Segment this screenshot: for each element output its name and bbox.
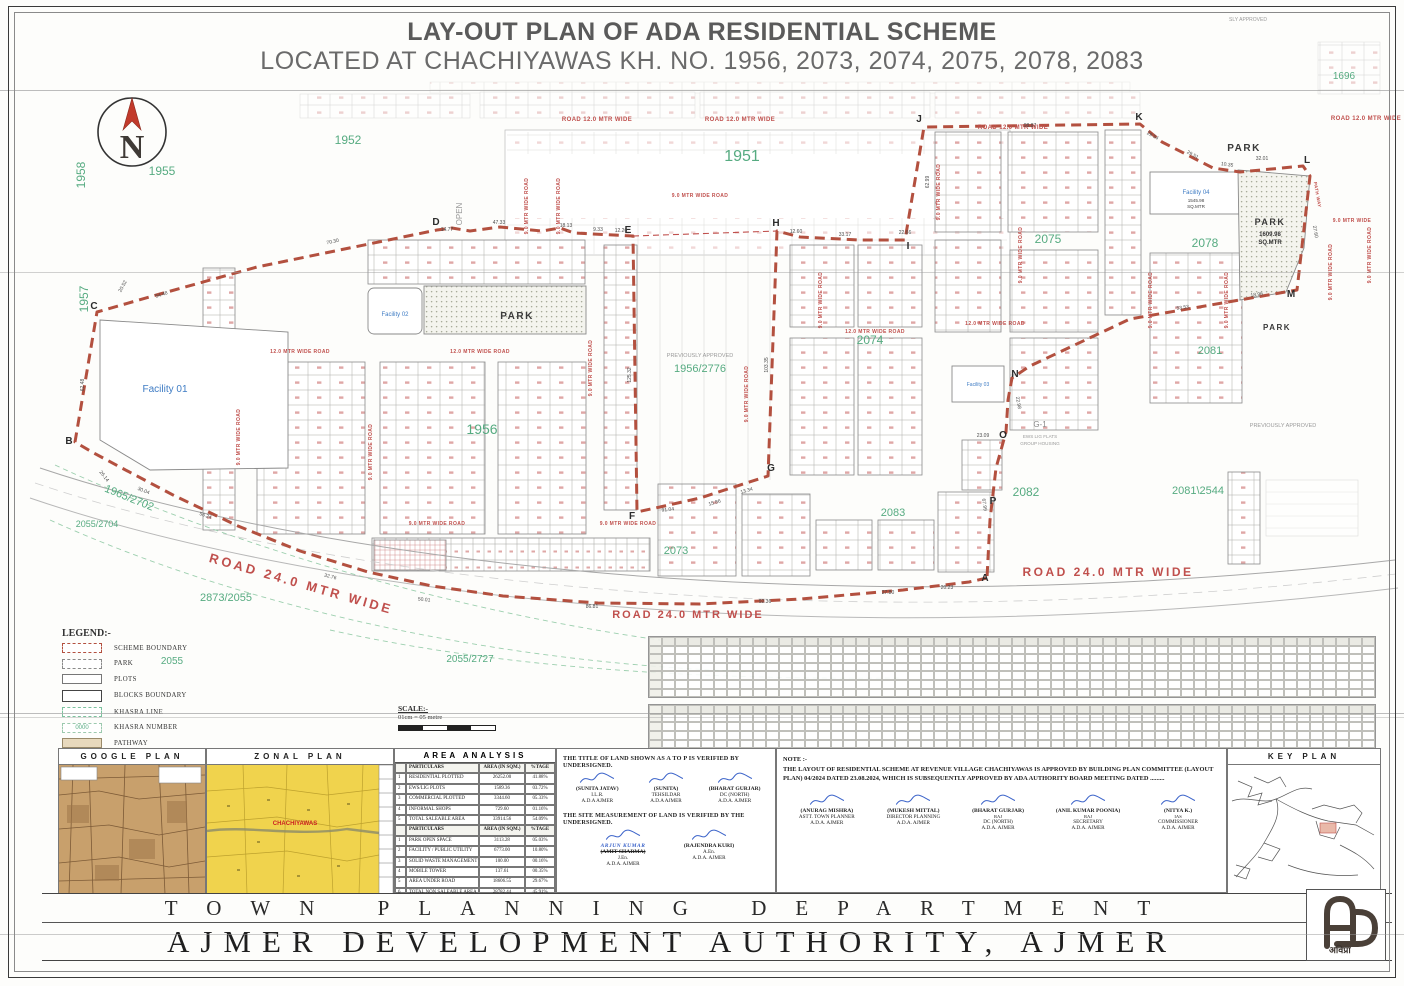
schedule-cell [662, 671, 675, 680]
svg-text:9.0 MTR WIDE ROAD: 9.0 MTR WIDE ROAD [818, 272, 824, 329]
svg-text:Facility 01: Facility 01 [142, 384, 187, 395]
schedule-cell [1155, 680, 1168, 689]
plot-schedule-table [648, 636, 1376, 698]
schedule-cell [843, 689, 856, 698]
schedule-cell [1362, 671, 1375, 680]
schedule-cell [753, 654, 766, 663]
area-analysis-row: 5TOTAL SALEABLE AREA33914.5654.09% [395, 815, 555, 825]
schedule-cell [1258, 637, 1271, 646]
schedule-cell [921, 671, 934, 680]
schedule-cell [882, 740, 895, 749]
schedule-cell [675, 722, 688, 731]
schedule-cell [805, 654, 818, 663]
schedule-cell [908, 646, 921, 655]
schedule-cell [843, 680, 856, 689]
schedule-cell [675, 637, 688, 646]
schedule-cell [1297, 689, 1310, 698]
signature-scribble-icon [1156, 794, 1200, 808]
schedule-cell [960, 689, 973, 698]
north-letter: N [120, 129, 145, 166]
note-body: NOTE :- THE LAYOUT OF RESIDENTIAL SCHEME… [777, 749, 1226, 837]
verification-panel: THE TITLE OF LAND SHOWN AS A TO P IS VER… [556, 748, 776, 893]
svg-text:C: C [90, 301, 97, 312]
khasra-line-swatch [62, 707, 102, 717]
schedule-cell [882, 689, 895, 698]
schedule-cell [882, 637, 895, 646]
svg-text:103.35: 103.35 [764, 357, 770, 373]
area-analysis-panel: AREA ANALYSIS PARTICULARSAREA (IN SQM.)%… [394, 748, 556, 893]
schedule-cell [766, 654, 779, 663]
schedule-cell [1155, 654, 1168, 663]
key-plan-image [1228, 765, 1380, 894]
schedule-cell [792, 680, 805, 689]
schedule-cell [986, 731, 999, 740]
schedule-cell [1245, 689, 1258, 698]
schedule-cell [921, 731, 934, 740]
schedule-cell [675, 654, 688, 663]
legend-item-scheme-boundary: SCHEME BOUNDARY [62, 643, 262, 653]
schedule-cell [1090, 689, 1103, 698]
area-analysis-cell: 3 [395, 794, 406, 804]
schedule-cell [1116, 663, 1129, 672]
schedule-cell [701, 740, 714, 749]
schedule-cell [1258, 646, 1271, 655]
schedule-cell [805, 722, 818, 731]
schedule-cell [1349, 654, 1362, 663]
schedule-cell [934, 722, 947, 731]
schedule-cell [753, 722, 766, 731]
schedule-cell [1349, 731, 1362, 740]
schedule-cell [908, 654, 921, 663]
schedule-cell [1258, 680, 1271, 689]
schedule-cell [856, 663, 869, 672]
schedule-cell [740, 722, 753, 731]
schedule-cell [1051, 646, 1064, 655]
key-plan-header: KEY PLAN [1228, 749, 1380, 765]
schedule-cell [1323, 671, 1336, 680]
area-analysis-cell: 41.88% [525, 773, 555, 783]
svg-text:26.14: 26.14 [98, 470, 111, 484]
schedule-cell [714, 680, 727, 689]
schedule-cell [649, 680, 662, 689]
signature-block: (ANIL KUMAR POONIA)RAJSECRETARYA.D.A. AJ… [1056, 794, 1120, 831]
signatory-org: A.D.A. AJMER [709, 798, 761, 804]
svg-text:ROAD 24.0 MTR WIDE: ROAD 24.0 MTR WIDE [1022, 565, 1193, 579]
schedule-cell [1051, 740, 1064, 749]
schedule-cell [1181, 654, 1194, 663]
schedule-cell [973, 740, 986, 749]
schedule-cell [856, 689, 869, 698]
svg-text:H: H [772, 218, 779, 229]
schedule-cell [1219, 637, 1232, 646]
schedule-cell [895, 731, 908, 740]
schedule-cell [1168, 654, 1181, 663]
legend-label: KHASRA NUMBER [114, 724, 178, 731]
area-analysis-cell: 00.16% [525, 857, 555, 867]
schedule-cell [1077, 689, 1090, 698]
schedule-cell [1155, 689, 1168, 698]
schedule-cell [1025, 654, 1038, 663]
signatory-org: A.D.A. AJMER [1056, 825, 1120, 831]
schedule-cell [1349, 722, 1362, 731]
schedule-cell [1155, 731, 1168, 740]
schedule-cell [973, 731, 986, 740]
footer-title-block: TOWN PLANNING DEPARTMENT AJMER DEVELOPME… [42, 893, 1392, 961]
schedule-cell [1284, 663, 1297, 672]
schedule-cell [1090, 731, 1103, 740]
schedule-cell [1362, 637, 1375, 646]
schedule-cell [1271, 654, 1284, 663]
schedule-cell [1142, 680, 1155, 689]
svg-text:9.0 MTR WIDE ROAD: 9.0 MTR WIDE ROAD [744, 366, 750, 423]
area-analysis-title: AREA ANALYSIS [395, 749, 555, 763]
schedule-cell [649, 663, 662, 672]
schedule-cell [1077, 646, 1090, 655]
schedule-cell [1064, 731, 1077, 740]
schedule-cell [740, 740, 753, 749]
schedule-cell [1064, 689, 1077, 698]
schedule-cell [960, 740, 973, 749]
schedule-cell [1064, 654, 1077, 663]
schedule-cell [973, 646, 986, 655]
schedule-cell [831, 671, 844, 680]
schedule-cell [727, 637, 740, 646]
schedule-cell [1064, 740, 1077, 749]
schedule-cell [986, 646, 999, 655]
svg-text:Facility 03: Facility 03 [967, 382, 990, 388]
area-analysis-row: 1RESIDENTIAL PLOTTED26252.0041.88% [395, 773, 555, 783]
schedule-cell [1245, 663, 1258, 672]
schedule-cell [1168, 671, 1181, 680]
svg-text:125.32: 125.32 [627, 367, 633, 383]
schedule-cell [973, 671, 986, 680]
schedule-cell [1206, 680, 1219, 689]
svg-text:L: L [1304, 155, 1310, 166]
schedule-cell [792, 637, 805, 646]
schedule-cell [662, 663, 675, 672]
key-plan-panel: KEY PLAN [1227, 748, 1381, 893]
schedule-cell [921, 637, 934, 646]
schedule-cell [1103, 637, 1116, 646]
svg-text:14.77: 14.77 [441, 227, 454, 233]
schedule-cell [1336, 646, 1349, 655]
schedule-cell [1310, 680, 1323, 689]
area-analysis-row: PARTICULARSAREA (IN SQM.)%TAGE [395, 763, 555, 773]
svg-text:9.0 MTR WIDE ROAD: 9.0 MTR WIDE ROAD [1018, 227, 1024, 284]
schedule-cell [1219, 740, 1232, 749]
schedule-cell [908, 740, 921, 749]
schedule-cell [688, 663, 701, 672]
schedule-cell [1129, 740, 1142, 749]
area-analysis-cell: 10.80% [525, 846, 555, 856]
schedule-cell [908, 671, 921, 680]
signatory-name: (ANIL KUMAR POONIA) [1056, 808, 1120, 814]
scan-artifact-line [0, 934, 1404, 935]
schedule-cell [675, 689, 688, 698]
schedule-cell [753, 689, 766, 698]
schedule-cell [792, 654, 805, 663]
schedule-cell [947, 646, 960, 655]
schedule-cell [662, 731, 675, 740]
schedule-cell [1258, 654, 1271, 663]
schedule-cell [1206, 671, 1219, 680]
area-analysis-cell: INFORMAL SHOPS [406, 805, 479, 815]
svg-text:32.76: 32.76 [323, 573, 337, 582]
schedule-cell [714, 731, 727, 740]
schedule-cell [701, 680, 714, 689]
schedule-cell [1284, 689, 1297, 698]
schedule-cell [727, 663, 740, 672]
schedule-cell [1336, 722, 1349, 731]
schedule-cell [1336, 731, 1349, 740]
schedule-cell [1038, 740, 1051, 749]
schedule-cell [831, 663, 844, 672]
schedule-cell [1258, 740, 1271, 749]
svg-text:12.0 MTR WIDE ROAD: 12.0 MTR WIDE ROAD [450, 349, 510, 355]
schedule-cell [1038, 680, 1051, 689]
schedule-cell [753, 740, 766, 749]
schedule-cell [895, 740, 908, 749]
schedule-cell [1142, 663, 1155, 672]
schedule-cell [1219, 722, 1232, 731]
svg-text:P: P [990, 496, 997, 507]
schedule-cell [960, 663, 973, 672]
schedule-cell [649, 689, 662, 698]
area-analysis-cell [395, 763, 406, 773]
svg-text:9.0 MTR WIDE ROAD: 9.0 MTR WIDE ROAD [1148, 272, 1154, 329]
schedule-cell [960, 646, 973, 655]
svg-text:PARK: PARK [1255, 217, 1286, 227]
schedule-cell [869, 722, 882, 731]
schedule-cell [779, 731, 792, 740]
schedule-cell [779, 722, 792, 731]
area-analysis-row: 2FACILITY / PUBLIC UTILITY6773.0010.80% [395, 846, 555, 856]
legend-item-pathway: PATHWAY [62, 738, 262, 748]
signatory-org: A.D.A. AJMER [972, 825, 1024, 831]
schedule-cell [1310, 671, 1323, 680]
svg-text:PREVIOUSLY APPROVED: PREVIOUSLY APPROVED [1250, 423, 1316, 429]
schedule-cell [701, 671, 714, 680]
schedule-cell [1194, 663, 1207, 672]
schedule-cell [1206, 654, 1219, 663]
area-analysis-cell: PARTICULARS [406, 825, 479, 835]
schedule-cell [1168, 689, 1181, 698]
schedule-cell [1103, 722, 1116, 731]
signature-scribble-icon [713, 772, 757, 786]
legend-item-blocks-boundary: BLOCKS BOUNDARY [62, 690, 262, 702]
svg-text:92.36: 92.36 [759, 599, 772, 605]
google-plan-header: GOOGLE PLAN [59, 749, 205, 765]
svg-text:2075: 2075 [1035, 232, 1062, 246]
schedule-cell [779, 740, 792, 749]
schedule-cell [973, 637, 986, 646]
schedule-cell [1362, 646, 1375, 655]
schedule-cell [1323, 731, 1336, 740]
schedule-cell [1258, 671, 1271, 680]
schedule-cell [714, 740, 727, 749]
schedule-cell [1258, 731, 1271, 740]
schedule-cell [740, 689, 753, 698]
schedule-cell [869, 637, 882, 646]
svg-text:9.0 MTR WIDE ROAD: 9.0 MTR WIDE ROAD [1367, 227, 1373, 284]
schedule-cell [1090, 680, 1103, 689]
schedule-cell [1038, 646, 1051, 655]
schedule-cell [869, 731, 882, 740]
schedule-cell [1271, 689, 1284, 698]
schedule-cell [714, 689, 727, 698]
schedule-cell [1271, 722, 1284, 731]
schedule-cell [934, 654, 947, 663]
schedule-cell [649, 722, 662, 731]
signatory-org: A.D.A. AJMER [799, 820, 855, 826]
area-analysis-cell: 4 [395, 867, 406, 877]
svg-text:ROAD 24.0 MTR WIDE: ROAD 24.0 MTR WIDE [612, 609, 764, 621]
schedule-cell [1025, 663, 1038, 672]
schedule-cell [1103, 654, 1116, 663]
signatory-org: A.D.A. AJMER [683, 855, 735, 861]
schedule-cell [753, 637, 766, 646]
schedule-cell [1362, 689, 1375, 698]
schedule-cell [1142, 689, 1155, 698]
schedule-cell [1336, 689, 1349, 698]
legend-item-plots: PLOTS [62, 674, 262, 684]
area-analysis-cell [395, 825, 406, 835]
schedule-cell [649, 654, 662, 663]
schedule-cell [649, 731, 662, 740]
schedule-cell [1116, 654, 1129, 663]
schedule-cell [753, 680, 766, 689]
svg-text:PARK: PARK [1227, 143, 1261, 154]
svg-text:GROUP HOUSING: GROUP HOUSING [1020, 441, 1060, 446]
schedule-cell [921, 654, 934, 663]
area-analysis-cell: 26252.00 [479, 773, 525, 783]
schedule-cell [766, 671, 779, 680]
schedule-cell [1155, 740, 1168, 749]
schedule-cell [1206, 646, 1219, 655]
scale-heading: SCALE:- [398, 704, 496, 713]
schedule-cell [675, 680, 688, 689]
schedule-cell [675, 731, 688, 740]
signature-scribble-icon [891, 794, 935, 808]
schedule-cell [1181, 740, 1194, 749]
svg-text:1951: 1951 [724, 148, 760, 165]
schedule-cell [869, 689, 882, 698]
schedule-cell [1129, 671, 1142, 680]
svg-text:PATH WAY: PATH WAY [1313, 182, 1322, 208]
schedule-cell [1168, 637, 1181, 646]
schedule-cell [1038, 654, 1051, 663]
schedule-cell [1064, 646, 1077, 655]
schedule-cell [1012, 654, 1025, 663]
svg-text:1957: 1957 [77, 285, 91, 312]
schedule-cell [1168, 740, 1181, 749]
schedule-cell [1219, 646, 1232, 655]
svg-text:18.13: 18.13 [560, 223, 573, 229]
schedule-cell [1051, 680, 1064, 689]
schedule-cell [740, 671, 753, 680]
svg-text:9.0 MTR WIDE ROAD: 9.0 MTR WIDE ROAD [524, 178, 530, 235]
zonal-marker-label: CHACHIYAWAS [273, 821, 317, 827]
svg-text:10.35: 10.35 [1221, 161, 1234, 169]
schedule-cell [1012, 689, 1025, 698]
schedule-cell [1090, 646, 1103, 655]
pathway-swatch [62, 738, 102, 748]
schedule-cell [947, 689, 960, 698]
schedule-cell [1219, 671, 1232, 680]
area-analysis-cell: 3 [395, 857, 406, 867]
schedule-cell [1038, 722, 1051, 731]
schedule-cell [701, 663, 714, 672]
schedule-cell [1142, 646, 1155, 655]
schedule-cell [792, 731, 805, 740]
schedule-cell [921, 740, 934, 749]
schedule-cell [1194, 671, 1207, 680]
ada-logo: अविप्रा [1306, 889, 1386, 961]
schedule-cell [701, 722, 714, 731]
schedule-cell [831, 680, 844, 689]
schedule-cell [792, 740, 805, 749]
schedule-cell [1129, 689, 1142, 698]
schedule-cell [1310, 740, 1323, 749]
schedule-cell [714, 722, 727, 731]
schedule-cell [1142, 722, 1155, 731]
schedule-cell [766, 731, 779, 740]
schedule-cell [1155, 637, 1168, 646]
signature-block: (SUNITA)TEHSILDARA.D.A AJMER [640, 772, 692, 804]
schedule-cell [869, 663, 882, 672]
schedule-cell [973, 680, 986, 689]
signatory-role: ASTT. TOWN PLANNER [799, 814, 855, 820]
schedule-cell [1245, 740, 1258, 749]
schedule-cell [895, 646, 908, 655]
schedule-cell [1206, 663, 1219, 672]
schedule-cell [986, 654, 999, 663]
svg-text:ROAD 12.0 MTR WIDE: ROAD 12.0 MTR WIDE [978, 125, 1048, 131]
svg-text:12.0 MTR WIDE ROAD: 12.0 MTR WIDE ROAD [270, 349, 330, 355]
schedule-cell [999, 722, 1012, 731]
schedule-cell [1349, 680, 1362, 689]
schedule-cell [805, 671, 818, 680]
schedule-cell [1116, 671, 1129, 680]
schedule-cell [960, 671, 973, 680]
schedule-cell [1168, 722, 1181, 731]
schedule-cell [649, 646, 662, 655]
schedule-cell [973, 663, 986, 672]
schedule-cell [843, 722, 856, 731]
schedule-cell [1232, 689, 1245, 698]
schedule-cell [856, 637, 869, 646]
schedule-cell [1129, 680, 1142, 689]
area-analysis-cell: 1 [395, 836, 406, 846]
schedule-cell [779, 654, 792, 663]
schedule-cell [1012, 637, 1025, 646]
signatory-org: A.D.A AJMER [571, 798, 623, 804]
svg-text:20.52: 20.52 [118, 279, 129, 293]
north-arrow: N [94, 92, 170, 172]
schedule-cell [1232, 731, 1245, 740]
schedule-cell [1297, 740, 1310, 749]
svg-text:9.0 MTR WIDE ROAD: 9.0 MTR WIDE ROAD [236, 409, 242, 466]
schedule-cell [1064, 671, 1077, 680]
svg-text:62.99: 62.99 [925, 176, 931, 189]
svg-text:50.01: 50.01 [418, 596, 431, 603]
schedule-cell [1051, 671, 1064, 680]
area-analysis-cell: 137.61 [479, 867, 525, 877]
area-analysis-cell: %TAGE [525, 763, 555, 773]
schedule-cell [1064, 722, 1077, 731]
schedule-cell [1297, 722, 1310, 731]
svg-text:1545.98: 1545.98 [1188, 198, 1205, 203]
